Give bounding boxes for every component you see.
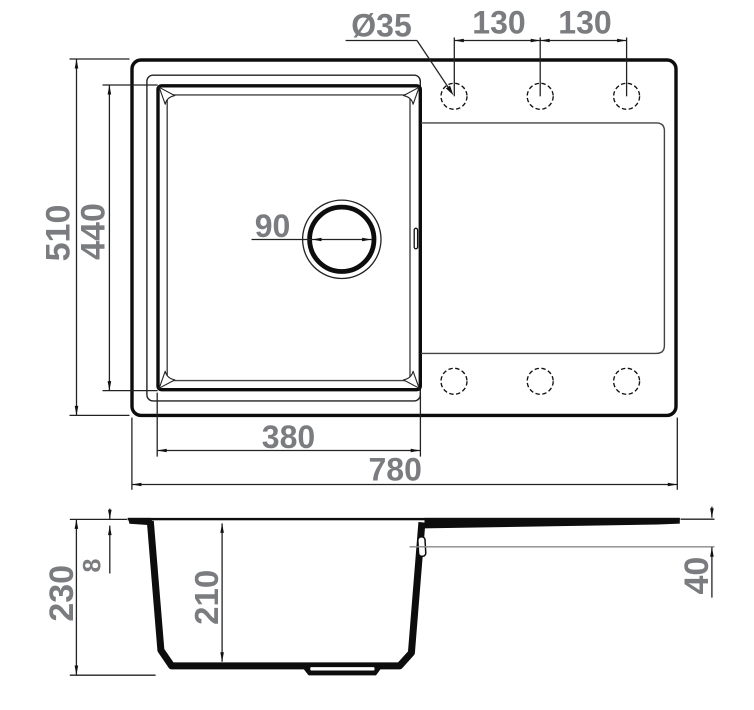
svg-text:230: 230 (43, 565, 81, 622)
svg-text:40: 40 (678, 557, 716, 595)
svg-text:Ø35: Ø35 (351, 8, 411, 44)
svg-text:440: 440 (75, 203, 113, 260)
svg-text:780: 780 (369, 451, 422, 487)
svg-text:90: 90 (255, 208, 291, 244)
svg-text:8: 8 (79, 559, 107, 573)
svg-text:210: 210 (188, 570, 225, 625)
svg-text:130: 130 (558, 4, 611, 40)
svg-text:380: 380 (262, 419, 315, 455)
svg-text:510: 510 (40, 205, 78, 262)
svg-text:130: 130 (472, 4, 525, 40)
